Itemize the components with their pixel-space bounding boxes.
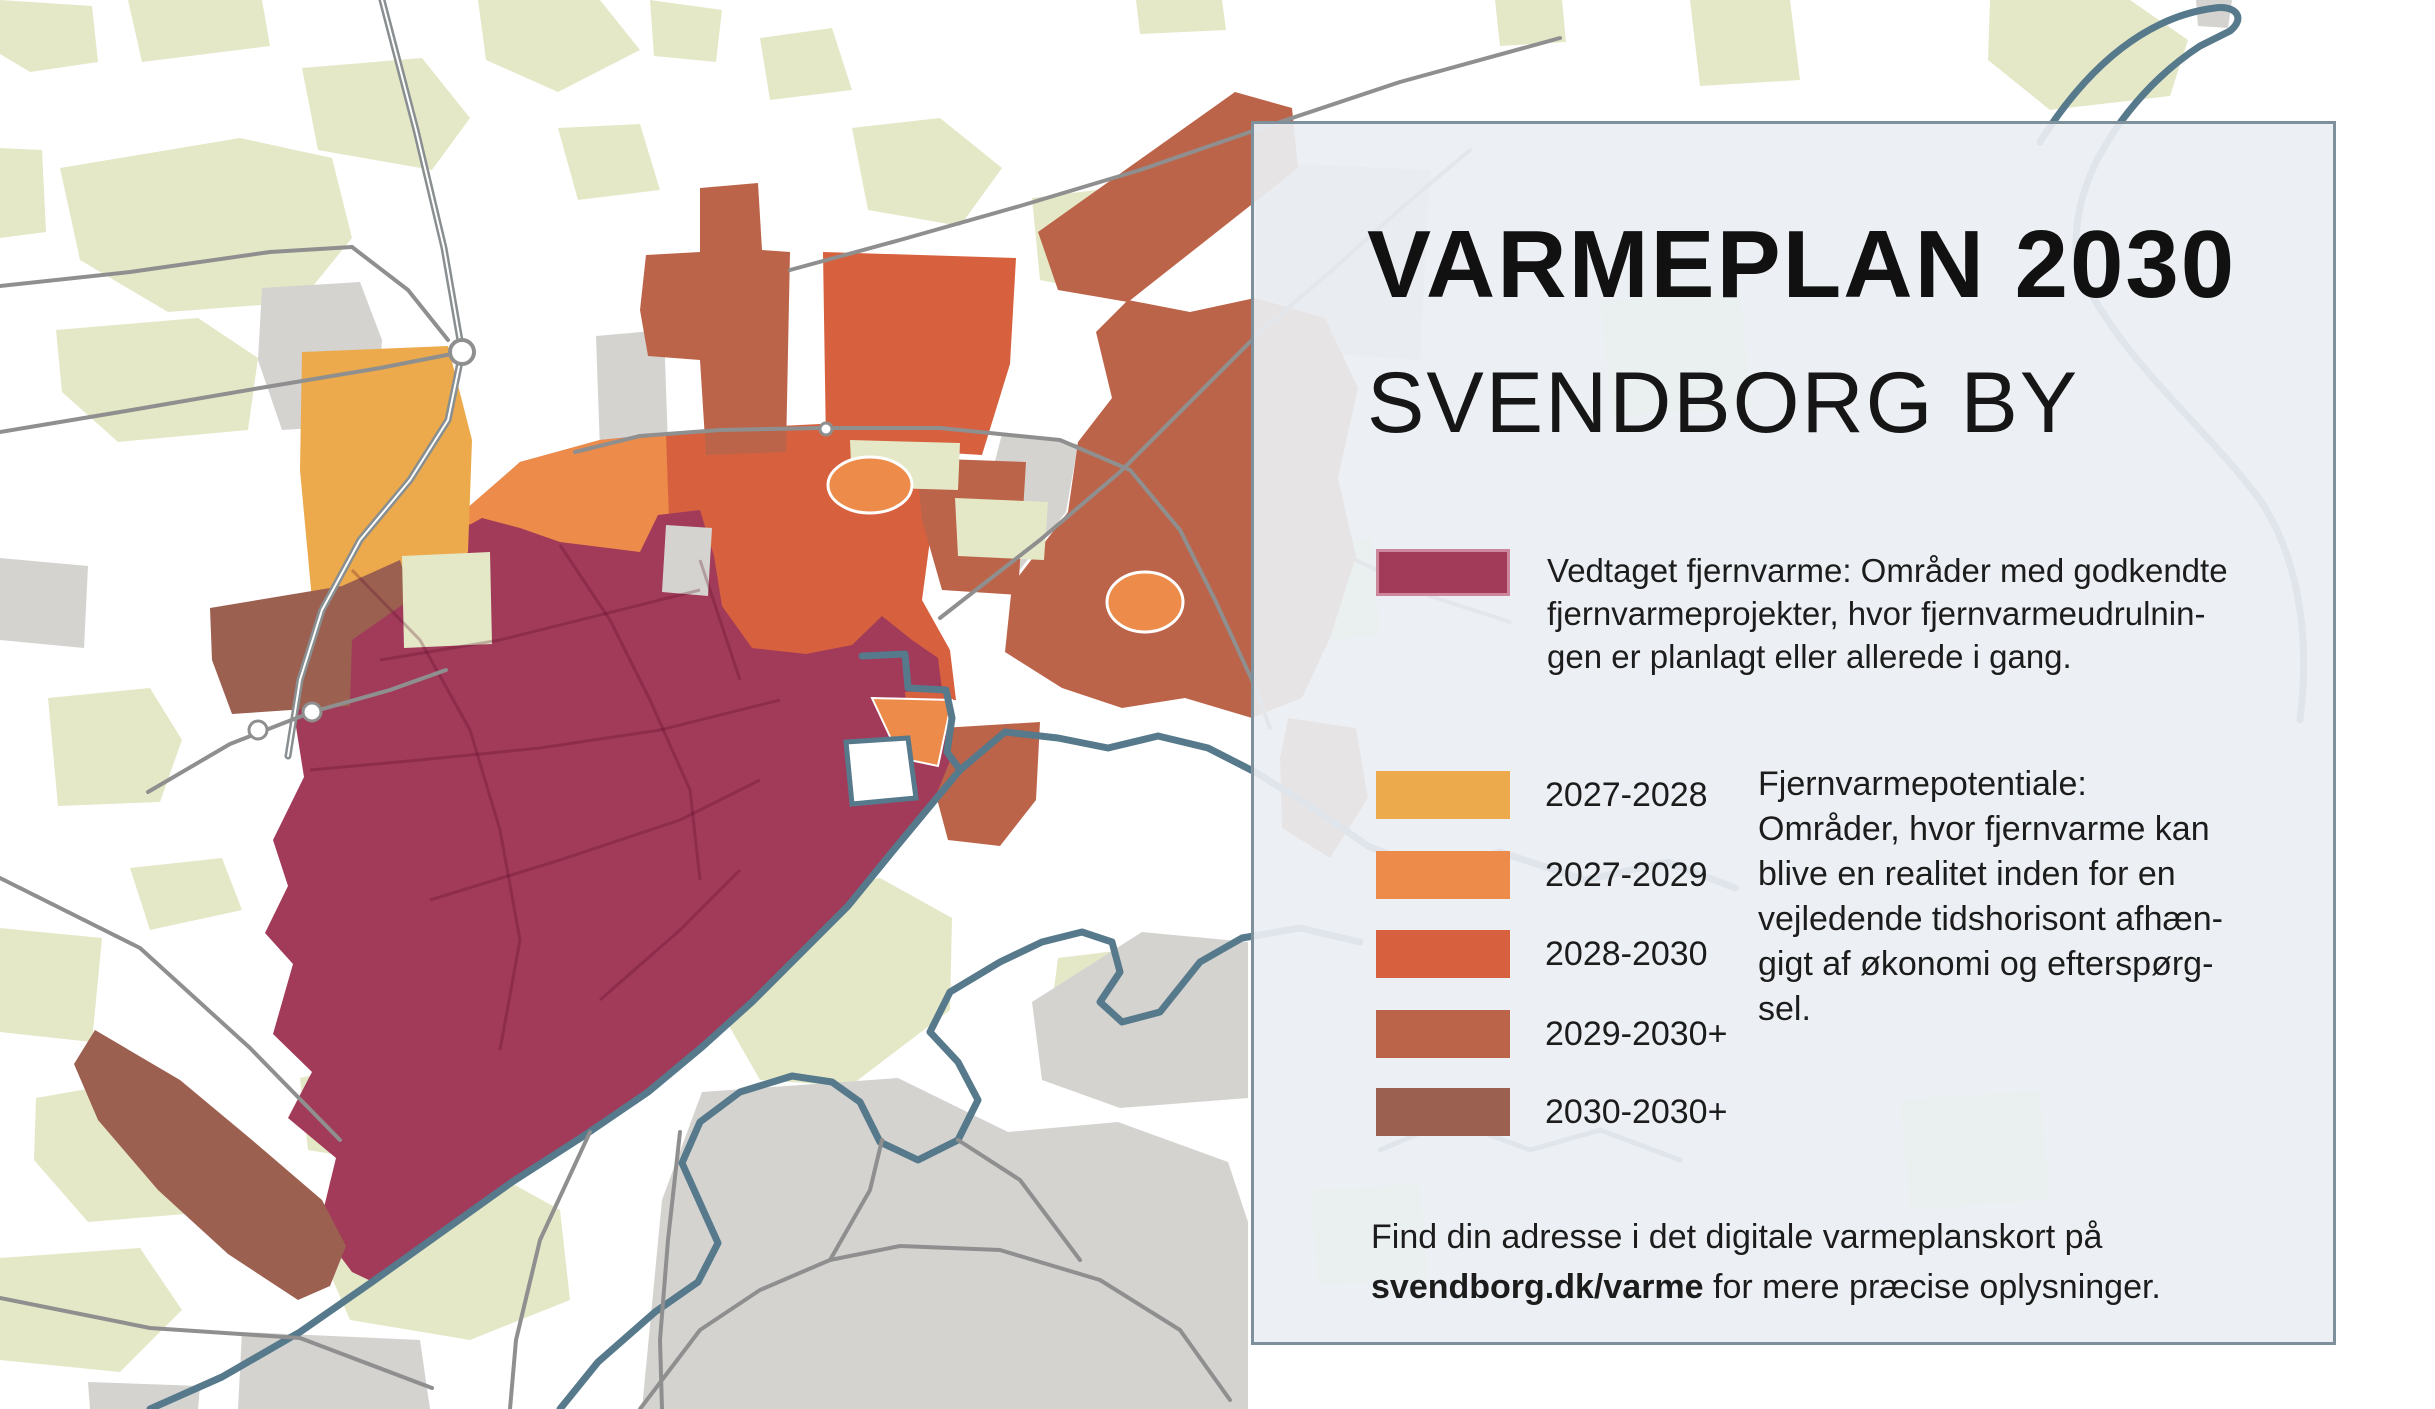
- adopted-line: gen er planlagt eller allerede i gang.: [1547, 635, 2228, 678]
- legend-label: 2028-2030: [1545, 930, 1708, 978]
- adopted-line: fjernvarmeprojekter, hvor fjernvarmeudru…: [1547, 592, 2228, 635]
- footer-url: svendborg.dk/varme: [1371, 1268, 1704, 1306]
- legend-label: 2030-2030+: [1545, 1088, 1727, 1136]
- potential-line: Fjernvarmepotentiale:: [1758, 762, 2328, 807]
- roundabout-icon: [450, 340, 474, 364]
- potential-line: sel.: [1758, 987, 2328, 1032]
- footer-line1: Find din adresse i det digitale varmepla…: [1371, 1212, 2161, 1262]
- footer-line2: svendborg.dk/varme for mere præcise oply…: [1371, 1262, 2161, 1312]
- adopted-swatch: [1376, 549, 1510, 596]
- junction-icon: [820, 423, 832, 435]
- adopted-description: Vedtaget fjernvarme: Områder med godkend…: [1547, 549, 2228, 678]
- legend-label: 2027-2029: [1545, 851, 1708, 899]
- legend-row-2030-2030: 2030-2030+: [1376, 1088, 1727, 1136]
- varmeplan-infographic: VARMEPLAN 2030 SVENDBORG BY Vedtaget fje…: [0, 0, 2435, 1409]
- potential-line: blive en realitet inden for en: [1758, 852, 2328, 897]
- legend-swatch: [1376, 1010, 1510, 1058]
- adopted-line: Vedtaget fjernvarme: Områder med godkend…: [1547, 549, 2228, 592]
- potential-line: Områder, hvor fjernvarme kan: [1758, 807, 2328, 852]
- legend-swatch: [1376, 771, 1510, 819]
- legend-row-2029-2030: 2029-2030+: [1376, 1010, 1727, 1058]
- legend-row-2027-2029: 2027-2029: [1376, 851, 1708, 899]
- legend-swatch: [1376, 851, 1510, 899]
- footer-line2-rest: for mere præcise oplysninger.: [1704, 1268, 2161, 1306]
- rail-crossing-icon: [303, 703, 321, 721]
- legend-label: 2027-2028: [1545, 771, 1708, 819]
- legend-swatch: [1376, 930, 1510, 978]
- legend-row-2027-2028: 2027-2028: [1376, 771, 1708, 819]
- legend-label: 2029-2030+: [1545, 1010, 1727, 1058]
- potential-line: gigt af økonomi og efterspørg-: [1758, 942, 2328, 987]
- rail-crossing-icon: [249, 721, 267, 739]
- page-subtitle: SVENDBORG BY: [1367, 356, 2079, 451]
- potential-description: Fjernvarmepotentiale: Områder, hvor fjer…: [1758, 762, 2328, 1032]
- footer-note: Find din adresse i det digitale varmepla…: [1371, 1212, 2161, 1312]
- potential-line: vejledende tidshorisont afhæn-: [1758, 897, 2328, 942]
- legend-panel: VARMEPLAN 2030 SVENDBORG BY Vedtaget fje…: [1251, 121, 2336, 1345]
- legend-swatch: [1376, 1088, 1510, 1136]
- legend-row-2028-2030: 2028-2030: [1376, 930, 1708, 978]
- page-title: VARMEPLAN 2030: [1367, 212, 2236, 318]
- adopted-legend-row: Vedtaget fjernvarme: Områder med godkend…: [1376, 549, 2228, 678]
